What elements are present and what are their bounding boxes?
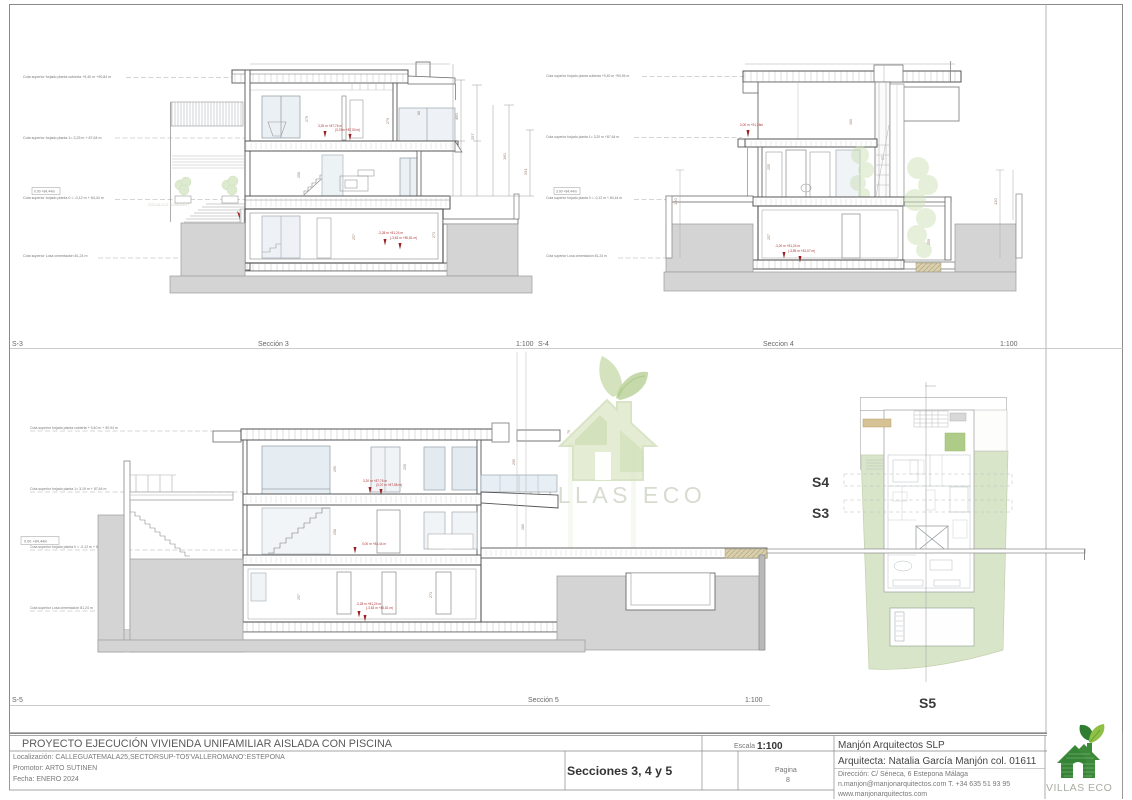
svg-text:17: 17	[881, 156, 885, 160]
svg-text:291: 291	[523, 168, 528, 175]
svg-text:8: 8	[786, 777, 790, 784]
svg-text:255: 255	[767, 164, 771, 170]
svg-text:S5: S5	[919, 695, 936, 711]
svg-text:VILLAS ECO: VILLAS ECO	[1046, 782, 1112, 794]
svg-text:279: 279	[386, 118, 390, 124]
svg-text:258: 258	[333, 529, 337, 535]
svg-text:460: 460	[454, 113, 459, 120]
svg-text:257: 257	[297, 594, 301, 600]
svg-text:Cota superior forjado planta 1: Cota superior forjado planta 1= 3,25 m +…	[23, 136, 102, 140]
svg-text:www.manjonarquitectos.com: www.manjonarquitectos.com	[837, 791, 927, 798]
svg-text:Escala: Escala	[734, 743, 755, 750]
svg-text:0,00 m +91,36m: 0,00 m +91,36m	[740, 123, 763, 127]
svg-text:0.00 +84,44m: 0.00 +84,44m	[34, 190, 55, 194]
svg-text:255: 255	[403, 464, 407, 470]
svg-text:290: 290	[512, 459, 516, 465]
svg-text:Sección 3: Sección 3	[258, 341, 289, 348]
svg-text:Cota superior Losa cimentación: Cota superior Losa cimentación 81,24 m	[23, 254, 88, 258]
svg-text:(-3,63 m +80,81 m): (-3,63 m +80,81 m)	[390, 236, 417, 240]
svg-text:Manjón Arquitectos SLP: Manjón Arquitectos SLP	[838, 740, 945, 751]
svg-text:1:100: 1:100	[516, 341, 534, 348]
svg-text:290: 290	[333, 466, 337, 472]
svg-text:-3,20 m +81,24 m: -3,20 m +81,24 m	[775, 244, 800, 248]
svg-text:(3,07 m +87,58 m): (3,07 m +87,58 m)	[376, 483, 402, 487]
svg-text:Pagina: Pagina	[775, 767, 797, 774]
svg-text:Sección 5: Sección 5	[528, 697, 559, 704]
svg-text:279: 279	[305, 116, 309, 122]
svg-text:(-3,63 m +80,81 m): (-3,63 m +80,81 m)	[366, 606, 393, 610]
svg-text:160: 160	[849, 119, 853, 125]
svg-text:-3,28 m +81,24 m: -3,28 m +81,24 m	[378, 231, 403, 235]
svg-text:(3,07m +87,50 m): (3,07m +87,50 m)	[335, 128, 360, 132]
svg-text:S3: S3	[812, 505, 829, 521]
svg-text:3.00 +84,44m: 3.00 +84,44m	[556, 190, 577, 194]
svg-text:88: 88	[417, 111, 421, 115]
svg-text:258: 258	[297, 172, 301, 178]
svg-text:Cota superior forjado planta c: Cota superior forjado planta cubierta + …	[30, 426, 118, 430]
svg-text:Cota superior forjado planta 0: Cota superior forjado planta 0 = -0,12 m…	[23, 196, 104, 200]
svg-text:PROYECTO EJECUCIÓN VIVIENDA UN: PROYECTO EJECUCIÓN VIVIENDA UNIFAMILIAR …	[22, 737, 393, 750]
svg-text:Fecha: ENERO 2024: Fecha: ENERO 2024	[13, 776, 79, 783]
svg-text:S-5: S-5	[12, 697, 23, 704]
svg-text:273: 273	[432, 232, 436, 238]
svg-text:257: 257	[767, 234, 771, 240]
svg-text:1:100: 1:100	[1000, 341, 1018, 348]
svg-text:120: 120	[673, 198, 678, 205]
svg-text:255: 255	[927, 239, 931, 245]
svg-text:S-3: S-3	[12, 341, 23, 348]
svg-text:Seccion 4: Seccion 4	[763, 341, 794, 348]
svg-text:280: 280	[521, 524, 525, 530]
svg-text:S4: S4	[812, 474, 829, 490]
svg-text:Localización: CALLEGUATEMALA25: Localización: CALLEGUATEMALA25,SECTORSUP…	[13, 754, 285, 761]
svg-text:n.manjon@manjonarquitectos.com: n.manjon@manjonarquitectos.com T. +34 63…	[838, 781, 1010, 788]
svg-text:160: 160	[502, 153, 507, 160]
svg-text:1:100: 1:100	[745, 697, 763, 704]
svg-text:Cota superior forjado planta 1: Cota superior forjado planta 1= 3,15 m +…	[30, 487, 107, 491]
svg-text:257: 257	[352, 234, 356, 240]
svg-text:(-3,55 m +81,07 m): (-3,55 m +81,07 m)	[788, 249, 815, 253]
svg-text:Promotor: ARTO SUTINEN: Promotor: ARTO SUTINEN	[13, 765, 97, 772]
svg-text:ZÓCALO D BGBNMNT: ZÓCALO D BGBNMNT	[148, 202, 190, 207]
svg-text:S-4: S-4	[538, 341, 549, 348]
svg-text:0,00 m +84,44 m: 0,00 m +84,44 m	[362, 542, 386, 546]
svg-text:Arquitecta: Natalia García Man: Arquitecta: Natalia García Manjón col. 0…	[838, 756, 1037, 767]
svg-text:Cota superior forjado planta c: Cota superior forjado planta cubierta +9…	[23, 75, 111, 79]
svg-text:120: 120	[993, 198, 998, 205]
svg-text:257: 257	[470, 133, 475, 140]
svg-text:Cota superior forjado planta 0: Cota superior forjado planta 0 = -0,12 m…	[546, 196, 622, 200]
svg-text:Secciones 3, 4 y 5: Secciones 3, 4 y 5	[567, 764, 672, 778]
svg-text:0.00 +84,44m: 0.00 +84,44m	[24, 540, 47, 544]
svg-text:273: 273	[429, 592, 433, 598]
svg-text:Cota superior Losa cimentación: Cota superior Losa cimentación 81,24 m	[30, 606, 93, 610]
svg-text:Cota superior forjado planta 1: Cota superior forjado planta 1= 3,20 m +…	[546, 135, 619, 139]
svg-text:Dirección: C/ Séneca, 6 Estepo: Dirección: C/ Séneca, 6 Estepona Málaga	[838, 771, 968, 778]
svg-text:70: 70	[567, 430, 571, 434]
svg-text:Cota superior Losa cimentación: Cota superior Losa cimentación 81,24 m	[546, 254, 607, 258]
svg-text:Cota superior forjado planta c: Cota superior forjado planta cubierta +9…	[546, 74, 629, 78]
svg-text:1:100: 1:100	[757, 741, 783, 752]
svg-text:Cota superior forjado planta 0: Cota superior forjado planta 0 = -0,12 m…	[30, 545, 109, 549]
